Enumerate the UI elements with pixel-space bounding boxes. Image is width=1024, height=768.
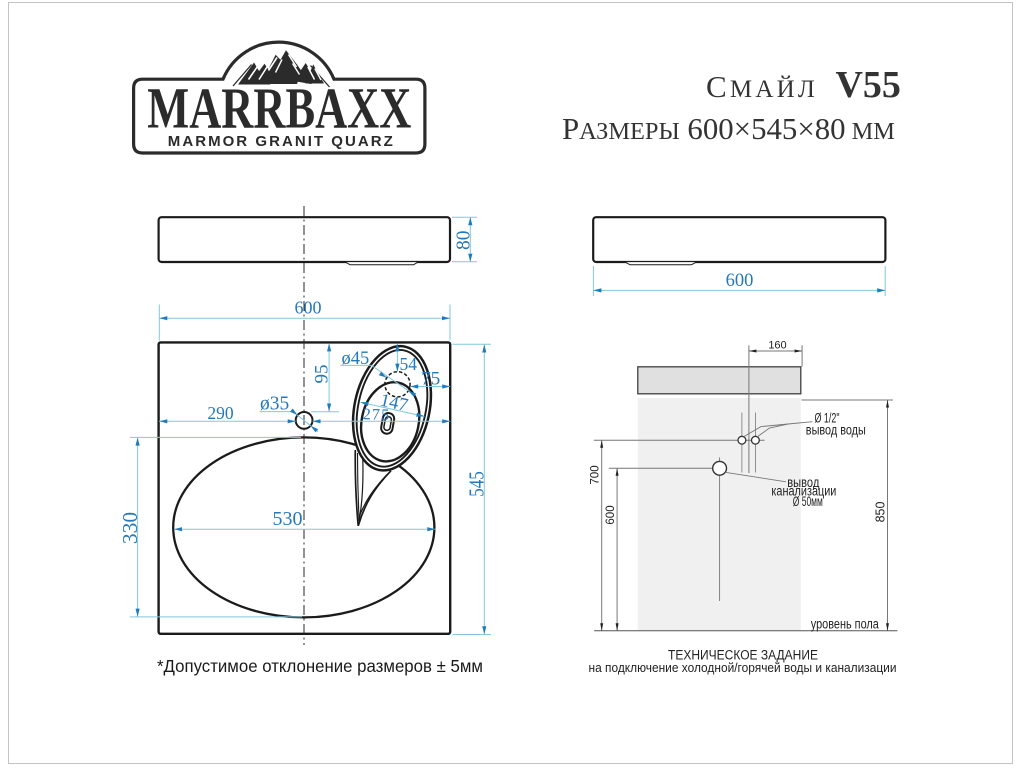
svg-text:600: 600 <box>726 271 754 291</box>
svg-text:600: 600 <box>295 298 322 318</box>
svg-text:700: 700 <box>590 465 602 484</box>
svg-text:545: 545 <box>465 471 489 497</box>
svg-text:850: 850 <box>874 502 888 523</box>
svg-text:330: 330 <box>118 512 142 544</box>
svg-text:ø35: ø35 <box>260 394 289 415</box>
svg-text:MARRBAXX: MARRBAXX <box>147 76 411 141</box>
svg-text:160: 160 <box>768 339 786 351</box>
svg-text:54: 54 <box>400 354 418 374</box>
svg-text:уровень пола: уровень пола <box>811 617 879 632</box>
svg-text:Ø 50мм: Ø 50мм <box>793 494 823 509</box>
svg-text:*Допустимое отклонение размеро: *Допустимое отклонение размеров ± 5мм <box>157 656 483 676</box>
svg-text:вывод воды: вывод воды <box>806 422 866 438</box>
svg-text:530: 530 <box>273 508 303 530</box>
svg-text:75: 75 <box>421 368 440 389</box>
svg-text:290: 290 <box>207 403 234 423</box>
svg-text:ø45: ø45 <box>342 349 370 369</box>
svg-text:на подключение холодной/горяче: на подключение холодной/горячей воды и к… <box>589 660 897 675</box>
svg-text:80: 80 <box>454 231 475 251</box>
svg-text:95: 95 <box>312 365 333 384</box>
svg-text:600: 600 <box>605 505 617 524</box>
